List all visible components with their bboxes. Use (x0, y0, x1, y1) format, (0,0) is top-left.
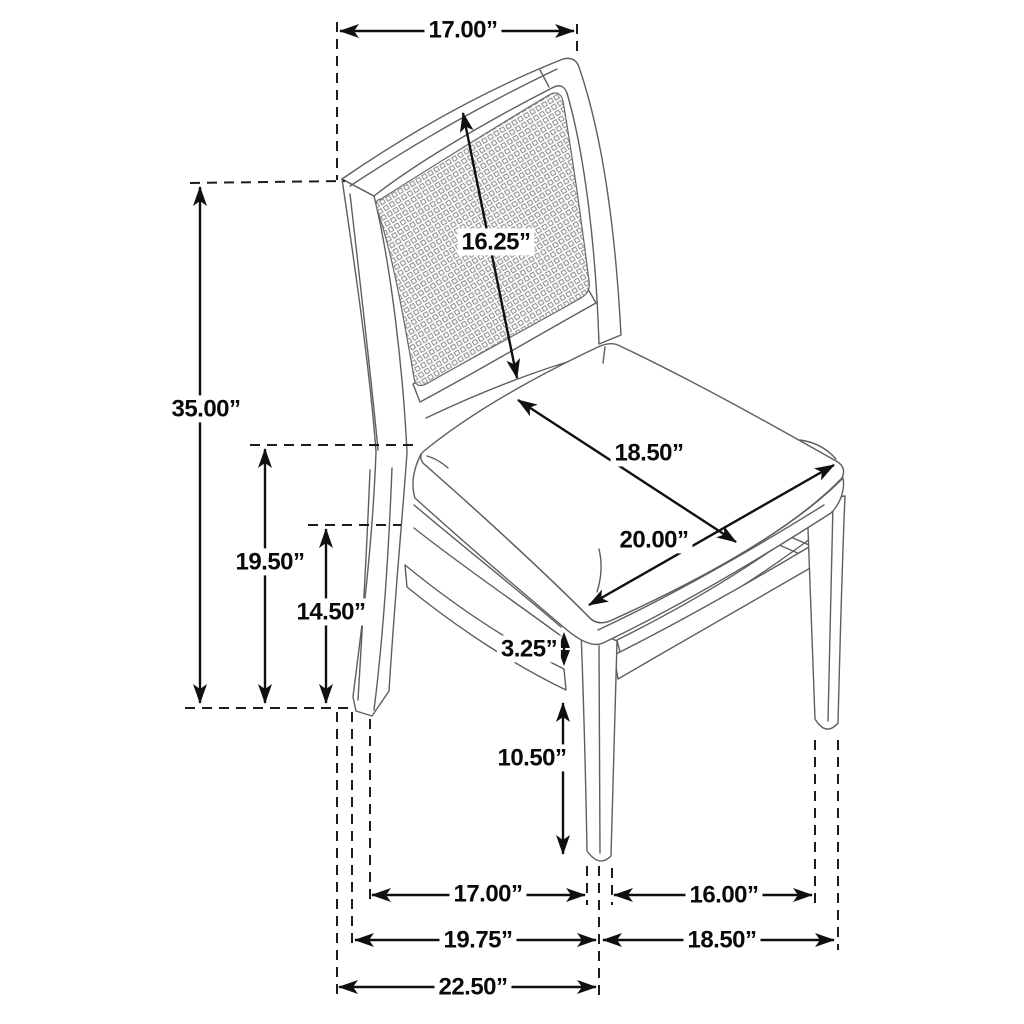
dim-label-back-top-width: 17.00” (424, 16, 501, 43)
dim-label-seat-width: 20.00” (615, 526, 692, 553)
dim-label-floor-width-outer: 18.50” (683, 926, 760, 953)
dim-label-seat-height: 19.50” (231, 548, 308, 575)
dim-label-stretcher-gap: 3.25” (497, 635, 561, 662)
dim-label-overall-height: 35.00” (167, 395, 244, 422)
dim-label-overall-depth: 22.50” (434, 973, 511, 1000)
front-right-leg (807, 496, 845, 729)
chair-dimension-diagram: 17.00” 16.25” 35.00” 19.50” 14.50” 18.50… (0, 0, 1024, 1024)
dim-label-floor-depth-outer: 19.75” (439, 926, 516, 953)
dim-label-seat-depth: 18.50” (610, 439, 687, 466)
chair-drawing (342, 58, 845, 861)
dim-label-floor-width-inner: 16.00” (685, 881, 762, 908)
diagram-canvas (0, 0, 1024, 1024)
dim-label-backrest-diagonal: 16.25” (457, 228, 534, 255)
dim-label-floor-to-apron: 14.50” (292, 598, 369, 625)
dim-label-front-leg-height: 10.50” (493, 744, 570, 771)
dim-label-floor-depth-inner: 17.00” (449, 880, 526, 907)
